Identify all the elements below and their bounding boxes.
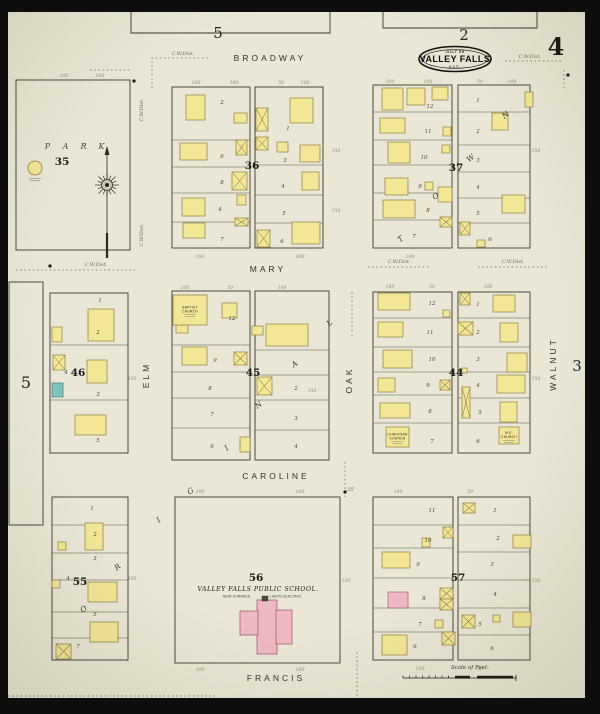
- scanned-map-photo: 353637464544555657BAPTISTCHURCHCHRISTIAN…: [0, 0, 600, 714]
- sanborn-map-canvas: 353637464544555657BAPTISTCHURCHCHRISTIAN…: [0, 0, 600, 714]
- paper-vignette: [8, 12, 585, 698]
